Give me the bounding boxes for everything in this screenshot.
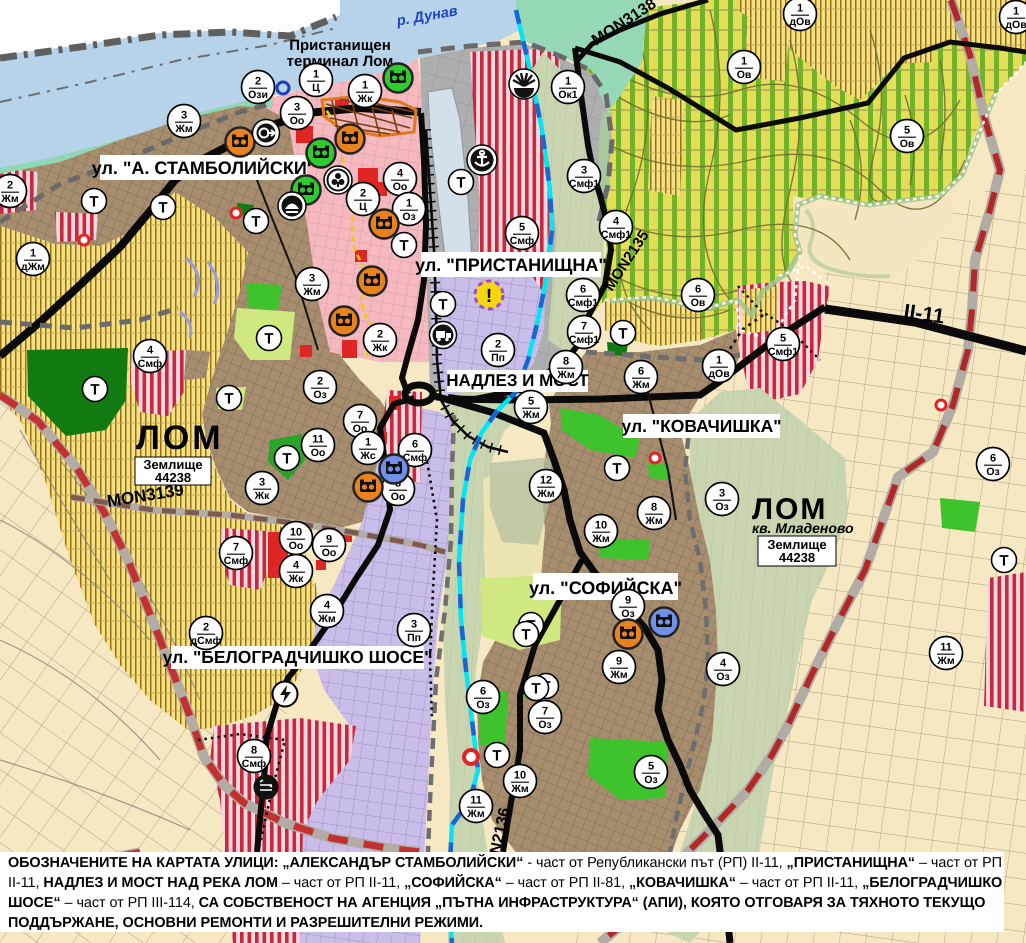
svg-text:1: 1 xyxy=(406,198,412,210)
svg-text:1: 1 xyxy=(30,248,36,260)
svg-text:11: 11 xyxy=(470,795,482,807)
svg-text:Оз: Оз xyxy=(716,671,729,683)
svg-text:7: 7 xyxy=(233,542,239,554)
svg-text:Т: Т xyxy=(251,214,260,231)
svg-text:6: 6 xyxy=(638,366,644,378)
svg-text:3: 3 xyxy=(309,273,315,285)
svg-text:10: 10 xyxy=(595,520,607,532)
svg-text:Ц: Ц xyxy=(312,82,320,94)
svg-text:Оо: Оо xyxy=(289,540,304,552)
svg-text:2: 2 xyxy=(255,76,261,88)
svg-text:Оз: Оз xyxy=(476,699,489,711)
svg-text:2: 2 xyxy=(360,188,366,200)
svg-text:9: 9 xyxy=(326,534,332,546)
svg-text:Пп: Пп xyxy=(407,632,421,644)
svg-text:Т: Т xyxy=(456,175,465,192)
svg-text:6: 6 xyxy=(480,686,486,698)
svg-text:Т: Т xyxy=(531,681,540,698)
svg-text:Т: Т xyxy=(521,627,530,644)
svg-text:дЖм: дЖм xyxy=(21,261,45,273)
svg-text:Ц: Ц xyxy=(359,201,367,213)
svg-text:Жм: Жм xyxy=(521,409,539,421)
svg-text:Оо: Оо xyxy=(391,491,406,503)
svg-text:дОв: дОв xyxy=(1005,19,1026,31)
svg-text:2: 2 xyxy=(203,622,209,634)
svg-text:4: 4 xyxy=(293,560,300,572)
svg-text:II-11, НАДЛЕЗ И МОСТ НАД РЕКА: II-11, НАДЛЕЗ И МОСТ НАД РЕКА ЛОМ – част… xyxy=(8,873,1002,891)
svg-text:Смф: Смф xyxy=(138,358,162,370)
svg-text:ШОСЕ“ – част от РП III-114, СА: ШОСЕ“ – част от РП III-114, СА СОБСТВЕНО… xyxy=(8,895,985,911)
svg-text:Смф1: Смф1 xyxy=(568,297,598,309)
svg-text:1: 1 xyxy=(313,69,319,81)
svg-text:Оз: Оз xyxy=(644,774,657,786)
svg-text:2: 2 xyxy=(7,180,13,192)
svg-text:Жм: Жм xyxy=(174,123,192,135)
svg-text:10: 10 xyxy=(514,770,526,782)
svg-text:Т: Т xyxy=(158,200,167,217)
svg-text:ПОДДЪРЖАНЕ, ОСНОВНИ РЕМОНТИ И: ПОДДЪРЖАНЕ, ОСНОВНИ РЕМОНТИ И РАЗРЕШИТЕЛ… xyxy=(8,915,483,931)
svg-text:2: 2 xyxy=(317,376,323,388)
svg-text:Ов: Ов xyxy=(691,297,706,309)
svg-text:ул. "КОВАЧИШКА": ул. "КОВАЧИШКА" xyxy=(621,416,781,436)
svg-text:Смф1: Смф1 xyxy=(601,229,631,241)
svg-text:8: 8 xyxy=(251,745,257,757)
svg-text:Смф1: Смф1 xyxy=(569,178,599,190)
svg-text:кв. Младеново: кв. Младеново xyxy=(752,520,854,536)
svg-text:Смф: Смф xyxy=(224,555,248,567)
svg-text:6: 6 xyxy=(412,439,418,451)
svg-text:Оз: Оз xyxy=(402,211,415,223)
svg-text:Т: Т xyxy=(492,748,501,765)
svg-text:Т: Т xyxy=(282,451,291,468)
svg-text:Жм: Жм xyxy=(591,533,609,545)
svg-text:Жм: Жм xyxy=(644,515,662,527)
svg-text:3: 3 xyxy=(581,165,587,177)
svg-text:1: 1 xyxy=(741,56,747,68)
svg-text:Ов: Ов xyxy=(737,69,752,81)
svg-text:Жм: Жм xyxy=(556,369,574,381)
svg-text:Смф: Смф xyxy=(242,758,266,770)
svg-text:Т: Т xyxy=(264,331,273,348)
svg-text:3: 3 xyxy=(181,110,187,122)
svg-text:5: 5 xyxy=(528,396,534,408)
svg-text:9: 9 xyxy=(616,656,622,668)
svg-text:дСмф: дСмф xyxy=(190,635,221,647)
svg-text:7: 7 xyxy=(542,706,548,718)
svg-text:Оз: Оз xyxy=(715,501,728,513)
svg-text:4: 4 xyxy=(324,600,331,612)
svg-text:5: 5 xyxy=(519,222,525,234)
svg-text:Ози: Ози xyxy=(248,89,268,101)
svg-text:Жм: Жм xyxy=(609,669,627,681)
svg-text:3: 3 xyxy=(411,619,417,631)
svg-text:Ов: Ов xyxy=(900,138,915,150)
svg-text:44238: 44238 xyxy=(155,470,191,485)
svg-text:10: 10 xyxy=(290,527,302,539)
svg-text:Оз: Оз xyxy=(621,608,634,620)
svg-text:Жм: Жм xyxy=(510,783,528,795)
svg-text:1: 1 xyxy=(365,437,371,449)
svg-text:Смф1: Смф1 xyxy=(768,346,798,358)
svg-text:Жм: Жм xyxy=(0,193,18,205)
svg-text:ЛОМ: ЛОМ xyxy=(136,419,224,457)
svg-text:Оо: Оо xyxy=(290,115,305,127)
svg-text:Жм: Жм xyxy=(631,379,649,391)
svg-text:Жм: Жм xyxy=(466,808,484,820)
svg-text:11: 11 xyxy=(940,642,952,654)
svg-text:Жс: Жс xyxy=(359,450,375,462)
svg-text:Т: Т xyxy=(438,297,447,314)
svg-text:3: 3 xyxy=(294,102,300,114)
svg-text:Жм: Жм xyxy=(302,286,320,298)
svg-text:ул. "ПРИСТАНИЩНА": ул. "ПРИСТАНИЩНА" xyxy=(415,255,607,275)
svg-text:Т: Т xyxy=(89,194,98,211)
svg-text:3: 3 xyxy=(719,488,725,500)
svg-text:4: 4 xyxy=(613,216,620,228)
svg-text:Жк: Жк xyxy=(372,342,388,354)
svg-text:7: 7 xyxy=(581,321,587,333)
svg-text:Т: Т xyxy=(90,382,99,399)
svg-text:6: 6 xyxy=(990,453,996,465)
svg-text:Жк: Жк xyxy=(288,573,304,585)
svg-text:Ок1: Ок1 xyxy=(558,89,577,101)
svg-text:7: 7 xyxy=(357,410,363,422)
svg-text:44238: 44238 xyxy=(779,550,815,565)
svg-text:ул. "СОФИЙСКА": ул. "СОФИЙСКА" xyxy=(529,577,682,598)
svg-text:Смф1: Смф1 xyxy=(569,334,599,346)
svg-text:6: 6 xyxy=(695,284,701,296)
svg-text:!: ! xyxy=(486,286,492,307)
svg-text:Смф: Смф xyxy=(510,235,534,247)
svg-text:1: 1 xyxy=(797,3,803,15)
svg-text:Т: Т xyxy=(618,326,627,343)
svg-text:ул. "А. СТАМБОЛИЙСКИ": ул. "А. СТАМБОЛИЙСКИ" xyxy=(92,157,316,178)
svg-text:Т: Т xyxy=(612,461,621,478)
svg-text:2: 2 xyxy=(377,329,383,341)
svg-text:Оо: Оо xyxy=(311,447,326,459)
svg-text:2: 2 xyxy=(495,339,501,351)
svg-text:4: 4 xyxy=(397,168,404,180)
svg-text:Жм: Жм xyxy=(536,488,554,500)
svg-text:Оо: Оо xyxy=(393,181,408,193)
svg-text:9: 9 xyxy=(625,595,631,607)
svg-text:Пристанищен: Пристанищен xyxy=(289,37,391,54)
svg-text:12: 12 xyxy=(540,475,552,487)
svg-text:5: 5 xyxy=(780,333,786,345)
svg-text:ОБОЗНАЧЕНИТЕ НА КАРТАТА УЛИЦИ:: ОБОЗНАЧЕНИТЕ НА КАРТАТА УЛИЦИ: „АЛЕКСАНД… xyxy=(8,853,1002,871)
svg-text:Оз: Оз xyxy=(538,719,551,731)
svg-text:Т: Т xyxy=(999,553,1008,570)
svg-text:4: 4 xyxy=(720,658,727,670)
svg-text:3: 3 xyxy=(259,477,265,489)
svg-text:1: 1 xyxy=(716,355,722,367)
svg-text:Жм: Жм xyxy=(317,613,335,625)
svg-text:дОв: дОв xyxy=(789,16,811,28)
svg-text:4: 4 xyxy=(147,345,154,357)
svg-text:6: 6 xyxy=(580,284,586,296)
svg-text:8: 8 xyxy=(563,356,569,368)
svg-text:Жк: Жк xyxy=(357,93,373,105)
svg-text:терминал Лом: терминал Лом xyxy=(287,53,394,70)
svg-text:Жк: Жк xyxy=(254,490,270,502)
svg-text:Т: Т xyxy=(224,391,233,408)
svg-text:Т: Т xyxy=(399,238,408,255)
svg-text:Оо: Оо xyxy=(322,547,337,559)
svg-text:Пп: Пп xyxy=(491,352,505,364)
svg-text:5: 5 xyxy=(648,761,654,773)
svg-text:1: 1 xyxy=(362,80,368,92)
svg-text:1: 1 xyxy=(565,76,571,88)
svg-text:1: 1 xyxy=(1013,6,1019,18)
svg-text:Оз: Оз xyxy=(986,466,999,478)
svg-text:дОв: дОв xyxy=(708,368,730,380)
svg-text:11: 11 xyxy=(312,434,324,446)
svg-text:Оз: Оз xyxy=(313,389,326,401)
svg-text:Жм: Жм xyxy=(936,655,954,667)
svg-text:5: 5 xyxy=(904,125,910,137)
svg-text:8: 8 xyxy=(651,502,657,514)
